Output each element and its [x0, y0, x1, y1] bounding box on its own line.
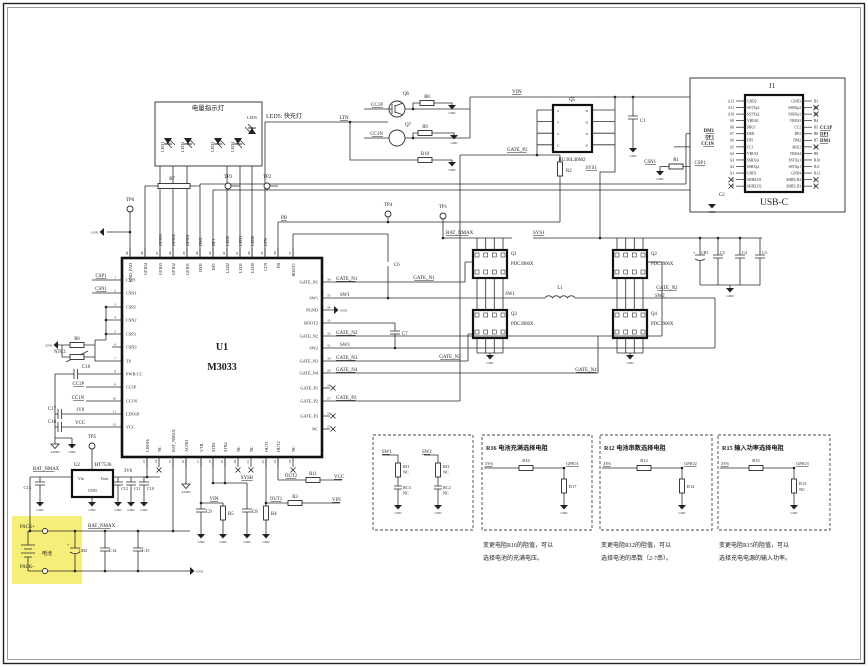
- net-sw2: SW2: [340, 343, 350, 348]
- q5-pin-s2: S: [557, 121, 559, 125]
- gnd-label: GND: [244, 540, 252, 544]
- u1-pin-num-26: 26: [327, 412, 331, 416]
- c4-ref: C4: [742, 250, 748, 255]
- j1-pin-VBUS3: VBUS3: [790, 119, 802, 123]
- gnd-label: GND: [727, 294, 735, 298]
- pack-plus-label: PACK+: [20, 525, 35, 530]
- u1-pin-num-6: 6: [114, 343, 116, 347]
- u1-pin-num-40: 40: [247, 251, 251, 255]
- r11-resistor: [306, 478, 320, 483]
- c16-ref: C16: [48, 420, 57, 425]
- q5-pin-d3: D: [585, 132, 588, 136]
- u1-pin-num-39: 39: [260, 251, 264, 255]
- gnd-label: GND: [791, 511, 799, 515]
- net-3v6-d: 3V6: [721, 461, 729, 466]
- u1-pin-label-GPIO2: GPIO2: [171, 263, 176, 275]
- r3-ref: R3: [292, 495, 298, 500]
- j1-pin-SSRXn1: SSRXn1: [747, 158, 760, 162]
- u1-pin-num-24: 24: [288, 460, 292, 464]
- j1-pin-DM2: DM2: [793, 139, 801, 143]
- pack-plus-terminal: [43, 529, 48, 534]
- q5-pin-d2: D: [585, 121, 588, 125]
- r14-resistor: [680, 479, 685, 493]
- c7-ref: C7: [402, 332, 408, 337]
- top-ext-gpio2: GPIO2: [171, 234, 176, 246]
- u1-pin-num-2: 2: [114, 289, 116, 293]
- j1-pin-SHIELD4: SHIELD4: [786, 178, 801, 182]
- tp2-testpoint: [264, 183, 270, 189]
- j1-pin-id-A7-5: A7: [730, 132, 735, 136]
- j1-pin-CC1: CC1: [747, 145, 754, 149]
- r16-ref: R16: [522, 458, 530, 463]
- c11-ref: C11: [134, 486, 141, 491]
- u1-pin-num-32: 32: [327, 332, 331, 336]
- u1-pin-label-SW2: SW2: [309, 346, 318, 351]
- cb1-ref: CB1: [701, 250, 709, 255]
- net-sw1: SW1: [340, 293, 350, 298]
- gnd-label: GND: [196, 569, 204, 573]
- c3-ref: C3: [762, 250, 767, 255]
- u1-pin-num-25: 25: [327, 425, 331, 429]
- boxd-cap1: 变更电阻R15的阻值，可以: [719, 541, 789, 549]
- top-ext-led0: LED0: [250, 236, 255, 246]
- r8-resistor: [420, 101, 434, 106]
- c2-ref: C2: [719, 193, 725, 198]
- u1-pin-num-10: 10: [113, 397, 117, 401]
- u1-pin-label-PGND: PGND: [306, 308, 318, 313]
- j1-pin-id-B11-10: B11: [814, 165, 820, 169]
- gnd-label: GND: [37, 508, 45, 512]
- boxb-cap2: 选择电池的充满电压。: [483, 554, 543, 562]
- r4-ref: R4: [271, 512, 277, 517]
- r14-ref: R14: [687, 484, 695, 489]
- u1-pin-num-18: 18: [208, 460, 212, 464]
- c10-ref: C10: [147, 486, 154, 491]
- u1-pin-num-19: 19: [220, 460, 224, 464]
- u1-pin-label-GATE_N1: GATE_N1: [300, 280, 318, 285]
- r4-resistor: [264, 506, 269, 520]
- led2-label: LED2: [180, 142, 185, 152]
- j1-pin-DM1: DM1: [747, 132, 755, 136]
- j1-pin-VBUS4: VBUS4: [790, 152, 802, 156]
- u1-pin-num-27: 27: [327, 397, 331, 401]
- c13-ref: C13: [23, 485, 31, 490]
- u1-pin-label-CSN1: CSN1: [126, 291, 137, 296]
- j1-pin-DP2: DP2: [795, 132, 802, 136]
- u1-pin-num-3: 3: [114, 303, 116, 307]
- net-gpio2: GPIO2: [684, 461, 697, 466]
- tp2-label: TP2: [263, 175, 272, 180]
- j1-pin-id-B9-8: B9: [814, 152, 818, 156]
- r7-ref: R7: [169, 177, 175, 182]
- j1-pin-id-0-13: 0: [814, 185, 816, 189]
- net-1v8: 1V8: [76, 408, 85, 413]
- net-3v6-pin13: 3V6: [124, 469, 133, 474]
- r15-ref: R15: [752, 458, 760, 463]
- u1-pin-num-48: 48: [140, 251, 144, 255]
- r10-resistor: [418, 158, 432, 163]
- led5-label: LED5: [247, 115, 257, 120]
- net-3v6-c: 3V6: [603, 461, 611, 466]
- j1-ref: J1: [769, 82, 776, 90]
- j1-pin-SHIELD3: SHIELD3: [786, 185, 801, 189]
- u1-pin-num-29: 29: [327, 369, 331, 373]
- boxc-cap2: 选择电池的串数（2-7串）。: [601, 554, 672, 562]
- u1-pin-label-STB2: STB2: [223, 442, 228, 452]
- boxd-title: R15 输入功率选择电阻: [722, 444, 785, 452]
- q5-ref: Q5: [569, 98, 576, 103]
- gnd-label: GND: [487, 361, 495, 365]
- u1-pin-num-11: 11: [113, 410, 117, 414]
- c6-ref: C6: [394, 263, 400, 268]
- j1-pin-DP1: DP1: [747, 139, 754, 143]
- u1-pin-num-20: 20: [233, 460, 237, 464]
- u1-pin-label-OUT2: OUT2: [276, 441, 281, 452]
- boxc-cap1: 变更电阻R12的阻值，可以: [601, 541, 671, 549]
- u1-pin-num-47: 47: [155, 251, 159, 255]
- q1-part: PDC3906X: [511, 262, 534, 267]
- u1-pin-num-14: 14: [154, 460, 158, 464]
- r5-resistor: [221, 506, 226, 520]
- q7-ref: Q7: [405, 123, 412, 128]
- j1-pin-id-A5-7: A5: [730, 145, 735, 149]
- j1-pin-id-B2-1: B2: [814, 106, 818, 110]
- rj2-ref: RJ2: [443, 464, 450, 469]
- boxb-title: R16 电池充满选择电阻: [486, 444, 549, 452]
- boxd-cap2: 选择充电电源的输入功率。: [719, 554, 791, 562]
- u1-pin-label-SW1: SW1: [309, 296, 318, 301]
- u1-pin-label-GND_PAD: GND_PAD: [128, 263, 133, 282]
- j1-pin-id-A10-2: A10: [728, 113, 734, 117]
- j1-pin-SSTXp2: SSTXp2: [747, 106, 760, 110]
- u1-pin-label-DP1: DP1: [211, 263, 216, 270]
- u1-part: M3033: [207, 362, 236, 373]
- u1-pin-num-1: 1: [114, 276, 116, 280]
- gnd-label: GND: [115, 508, 123, 512]
- net-sw1-ps: SW1: [505, 292, 515, 297]
- gnd-label: GND: [91, 230, 99, 234]
- rc2-ref: RC2: [443, 485, 451, 490]
- cb2-plus: +: [67, 542, 70, 547]
- j1-pin-GND3: GND3: [791, 99, 801, 103]
- u2-pin-gnd: GND: [88, 488, 97, 493]
- u1-pin-num-5: 5: [114, 330, 116, 334]
- pack-minus-label: PACK-: [20, 565, 34, 570]
- gnd-label: GND: [340, 308, 348, 312]
- u1-pin-num-44: 44: [195, 251, 199, 255]
- top-ext-gpio3: GPIO3: [158, 234, 163, 246]
- j1-pin-id-B10-9: B10: [814, 158, 820, 162]
- schematic-svg: 电量指示灯LED1LED2LED3LED4LED5LED5: 快充灯CC1PQ6…: [0, 0, 868, 667]
- u1-pin-num-42: 42: [222, 251, 226, 255]
- rj1-resistor: [396, 463, 401, 477]
- gnd-label: GND: [128, 508, 136, 512]
- j1-pin-id-A4-8: A4: [730, 152, 735, 156]
- tp6-testpoint: [127, 206, 133, 212]
- u1-pin-num-49: 49: [125, 251, 129, 255]
- j1-pin-GND4: GND4: [791, 171, 801, 175]
- u1-pin-label-NC: NC: [157, 446, 162, 452]
- u1-pin-num-35: 35: [327, 294, 331, 298]
- u1-pin-num-12: 12: [113, 423, 117, 427]
- r13-ref: R13: [799, 481, 807, 486]
- u1-pin-num-37: 37: [288, 251, 292, 255]
- u1-pin-num-15: 15: [168, 460, 172, 464]
- tp1-label: TP1: [439, 205, 448, 210]
- u1-pin-num-8: 8: [114, 370, 116, 374]
- j1-pin-CC2: CC2: [794, 126, 801, 130]
- gnd-label: GND: [220, 540, 228, 544]
- net-gpio1: GPIO1: [566, 461, 579, 466]
- u2-part: HT7536: [95, 463, 112, 468]
- l1-ref: L1: [557, 286, 563, 291]
- j1-pin-id-A6-6: A6: [730, 139, 735, 143]
- j1-pin-id-B4-3: B4: [814, 119, 818, 123]
- c9-ref: C9: [206, 510, 212, 515]
- u1-pin-label-GPIO3: GPIO3: [158, 263, 163, 275]
- rj1-ref: RJ1: [403, 464, 410, 469]
- q5-pin-d1: D: [585, 109, 588, 113]
- r11-ref: R11: [309, 472, 317, 477]
- r9-resistor: [418, 131, 432, 136]
- c12-ref: C12: [121, 486, 128, 491]
- u1-pin-label-CC1P: CC1P: [126, 385, 137, 390]
- u1-pin-num-16: 16: [181, 460, 185, 464]
- r15-resistor: [749, 466, 763, 471]
- u1-pin-label-LDO16: LDO16: [145, 439, 150, 452]
- c18-ref: C18: [82, 365, 91, 370]
- boxc-title: R12 电池串数选择电阻: [604, 444, 667, 452]
- j1-pin-SSRXp2: SSRXp2: [788, 106, 801, 110]
- q7-mosfet-icon: [389, 130, 405, 146]
- r13-nc: NC: [799, 487, 805, 492]
- u1-pin-label-NC: NC: [249, 446, 254, 452]
- u1-pin-num-23: 23: [273, 460, 277, 464]
- gnd-label: GND: [561, 511, 569, 515]
- u1-pin-num-41: 41: [235, 251, 239, 255]
- u1-pin-num-33: 33: [327, 319, 331, 323]
- j1-pin-SSRXn2: SSRXn2: [788, 113, 801, 117]
- tp5-testpoint: [89, 443, 95, 449]
- r16-resistor: [519, 466, 533, 471]
- j1-pin-id-B6-5: B6: [814, 132, 818, 136]
- q4-part: PDC3906X: [651, 322, 674, 327]
- c14-ref: C14: [109, 548, 117, 553]
- u1-pin-num-17: 17: [196, 460, 200, 464]
- u1-body: [122, 258, 322, 457]
- j1-pin-SSTXp1: SSTXp1: [789, 165, 802, 169]
- u1-pin-label-AGND: AGND: [184, 440, 189, 452]
- u1-pin-num-43: 43: [208, 251, 212, 255]
- led-box-title: 电量指示灯: [192, 103, 225, 112]
- r8-ref: R8: [424, 95, 430, 100]
- tp4-testpoint: [385, 211, 391, 217]
- j1-pin-id-B12-11: B12: [814, 171, 820, 175]
- u1-pin-label-OUT1: OUT1: [264, 441, 269, 452]
- q5-pin-s3: S: [557, 132, 559, 136]
- j1-pin-GND2: GND2: [747, 99, 757, 103]
- q4-ref: Q4: [651, 312, 657, 317]
- u1-pin-label-CC1N: CC1N: [126, 399, 137, 404]
- r2-resistor: [558, 162, 563, 176]
- gnd-label: GND: [709, 210, 717, 214]
- gnd-label: GND: [395, 511, 403, 515]
- j1-pin-id-B7-6: B7: [814, 139, 818, 143]
- u1-pin-num-31: 31: [327, 344, 331, 348]
- j1-pin-SSTXn1: SSTXn1: [789, 158, 802, 162]
- u1-pin-label-GPIO1: GPIO1: [185, 263, 190, 275]
- r5-ref: R5: [228, 512, 234, 517]
- j1-pin-SSTXn2: SSTXn2: [747, 113, 760, 117]
- u1-pin-num-4: 4: [114, 316, 116, 320]
- r12-ref: R12: [640, 458, 648, 463]
- r17-ref: R17: [569, 484, 577, 489]
- led1-label: LED1: [160, 142, 165, 152]
- gnd-label: GND: [449, 111, 457, 115]
- j1-pin-SBU2: SBU2: [792, 145, 801, 149]
- u1-pin-num-13: 13: [142, 460, 146, 464]
- q1-ref: Q1: [511, 252, 517, 257]
- top-ext-led1: LED1: [238, 236, 243, 246]
- j1-pin-id-B3-2: B3: [814, 113, 818, 117]
- u1-pin-label-DM1: DM1: [198, 263, 203, 272]
- u1-ref: U1: [216, 342, 228, 353]
- j1-pin-id-A11-1: A11: [728, 106, 734, 110]
- gnd-label: GND: [89, 508, 97, 512]
- u1-pin-label-NC: NC: [236, 446, 241, 452]
- tp4-label: TP4: [384, 203, 393, 208]
- u1-pin-num-28: 28: [327, 384, 331, 388]
- gnd-label: GND: [435, 511, 443, 515]
- u1-pin-label-BOOT2: BOOT2: [304, 321, 318, 326]
- j1-pin-id-A8-4: A8: [730, 126, 735, 130]
- u1-pin-label-LED2: LED2: [225, 263, 230, 273]
- c17-ref: C17: [48, 407, 57, 412]
- r2-ref: R2: [566, 169, 572, 174]
- schematic-page: 电量指示灯LED1LED2LED3LED4LED5LED5: 快充灯CC1PQ6…: [0, 0, 868, 667]
- j1-pin-id-0-12: 0: [732, 178, 734, 182]
- u2-pin-vout: Vout: [101, 476, 109, 481]
- j1-pin-id-B1-0: B1: [814, 99, 818, 103]
- u1-pin-label-GATE_N4: GATE_N4: [300, 371, 319, 376]
- net-vcc-left: VCC: [75, 421, 85, 426]
- rj2-resistor: [436, 463, 441, 477]
- cb1-plus: +: [693, 250, 696, 255]
- u1-pin-label-BAT_NMAX: BAT_NMAX: [171, 429, 176, 452]
- net-3v6-b: 3V6: [485, 461, 493, 466]
- gnd-label: GND: [45, 343, 53, 347]
- j1-pin-SBU1: SBU1: [747, 126, 756, 130]
- gnd-label: GND: [198, 540, 206, 544]
- gnd-label: GND: [449, 168, 457, 172]
- usbc-label: USB-C: [760, 198, 788, 208]
- battery-label: 电池: [42, 550, 52, 557]
- top-ext-dm1: DM1: [198, 237, 203, 246]
- tp3-testpoint: [225, 183, 231, 189]
- gnd-label: GND: [657, 177, 665, 181]
- u1-pin-num-45: 45: [182, 251, 186, 255]
- u1-pin-label-GATE_P2: GATE_P2: [300, 399, 318, 404]
- r9-ref: R9: [422, 125, 428, 130]
- r10-ref: R10: [421, 152, 430, 157]
- ntc1-thermistor: [70, 355, 84, 360]
- u1-pin-label-LDO18: LDO18: [126, 412, 139, 417]
- c1-ref: C1: [640, 119, 646, 124]
- u1-pin-num-36: 36: [327, 278, 331, 282]
- tp3-label: TP3: [224, 175, 233, 180]
- j1-pin-id-A9-3: A9: [730, 119, 735, 123]
- r7-resistor: [158, 184, 190, 189]
- u1-pin-label-BOOT1: BOOT1: [291, 263, 296, 277]
- j1-pin-id-0-12: 0: [814, 178, 816, 182]
- agnd-label: AGND: [50, 450, 60, 454]
- r6-ref: R6: [74, 337, 80, 342]
- gnd-label: GND: [679, 511, 687, 515]
- gnd-label: GND: [630, 154, 638, 158]
- u1-pin-label-STB1: STB1: [211, 442, 216, 452]
- q5-pin-s1: S: [557, 109, 559, 113]
- r12-resistor: [637, 466, 651, 471]
- u1-pin-label-GATE_N3: GATE_N3: [300, 359, 318, 364]
- u1-pin-label-PWR-CC: PWR-CC: [126, 372, 143, 377]
- gnd-label: GND: [141, 508, 149, 512]
- q3-ref: Q3: [511, 312, 517, 317]
- j1-pin-SSRXp1: SSRXp1: [747, 165, 760, 169]
- u1-pin-num-46: 46: [168, 251, 172, 255]
- q3-part: PDC3906X: [511, 322, 534, 327]
- u1-pin-label-CSN2: CSN2: [126, 318, 137, 323]
- r13-resistor: [792, 479, 797, 493]
- top-ext-ltn: LTN: [263, 238, 268, 246]
- u1-pin-label-LTN: LTN: [263, 263, 268, 271]
- led3-label: LED3: [210, 142, 215, 152]
- q5-pin-d4: D: [585, 144, 588, 148]
- j1-pin-id-0-13: 0: [732, 185, 734, 189]
- u1-pin-label-LED1: LED1: [238, 263, 243, 273]
- rc3-ref: RC3: [403, 485, 411, 490]
- r1-ref: R1: [673, 158, 679, 163]
- gnd-label: GND: [69, 450, 77, 454]
- j1-pin-GND1: GND1: [747, 171, 757, 175]
- c15-ref: C15: [142, 548, 150, 553]
- tp6-label: TP6: [126, 198, 135, 203]
- u1-pin-label-VTB: VTB: [199, 443, 204, 452]
- q5-part: RU30L40M2: [559, 158, 586, 163]
- u1-pin-label-LED0: LED0: [250, 263, 255, 273]
- net-sw2-ps: SW2: [655, 294, 665, 299]
- r17-resistor: [562, 479, 567, 493]
- u2-ref: U2: [74, 463, 81, 468]
- net-gpio3: GPIO3: [796, 461, 810, 466]
- j1-pin-VBUS2: VBUS2: [747, 119, 759, 123]
- r6-resistor: [70, 343, 84, 348]
- u2-pin-vin: Vin: [78, 476, 84, 481]
- u1-pin-label-VCC: VCC: [126, 425, 135, 430]
- rc3-nc: NC: [403, 491, 409, 496]
- u1-pin-label-CSN3: CSN3: [126, 345, 137, 350]
- j1-pin-id-B5-4: B5: [814, 126, 818, 130]
- q5-pin-g: G: [557, 144, 560, 148]
- c5-ref: C5: [720, 250, 725, 255]
- top-ext-dp1: DP1: [211, 239, 216, 246]
- led4-label: LED4: [230, 141, 235, 152]
- q6-ref: Q6: [403, 92, 410, 97]
- u1-pin-num-38: 38: [273, 251, 277, 255]
- gnd-label: GND: [263, 540, 271, 544]
- ntc1-ref: NTC1: [54, 350, 67, 355]
- u1-pin-label-TS: TS: [126, 359, 132, 364]
- rj2-nc: NC: [443, 470, 449, 475]
